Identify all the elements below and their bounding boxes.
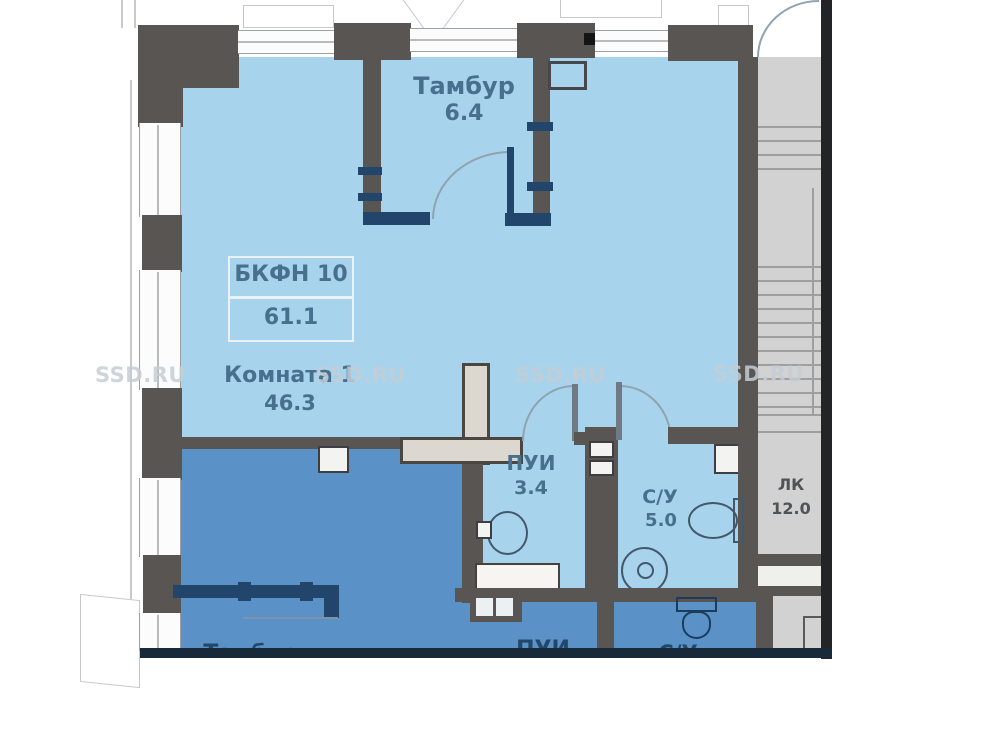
plan-bottom-edge bbox=[140, 648, 832, 658]
vent-shaft bbox=[714, 444, 741, 474]
room-pui-area: 3.4 bbox=[514, 478, 548, 499]
facade-line bbox=[134, 0, 136, 28]
room-pui-label: ПУИ bbox=[507, 452, 556, 474]
vent-shaft bbox=[589, 460, 614, 476]
window-mullion bbox=[157, 480, 159, 555]
tambur-bottom-partition bbox=[173, 585, 338, 598]
tambur-wall-return bbox=[363, 212, 430, 225]
partition-tick bbox=[358, 193, 382, 201]
watermark: SSD.RU bbox=[95, 363, 186, 387]
toilet-tank-icon bbox=[733, 498, 744, 543]
unit-area: 61.1 bbox=[264, 306, 318, 330]
column-mark bbox=[584, 33, 595, 45]
room-tambur-top-area: 6.4 bbox=[445, 102, 484, 126]
watermark: SSD.RU bbox=[713, 362, 804, 386]
window bbox=[139, 478, 181, 557]
vent-shaft bbox=[589, 441, 614, 458]
insulated-wall-horizontal bbox=[400, 437, 523, 464]
unit-info-divider bbox=[228, 296, 354, 299]
toilet-icon bbox=[688, 502, 738, 539]
wall-pier bbox=[142, 215, 182, 272]
stair-rail-line bbox=[812, 188, 814, 416]
window-mullion bbox=[157, 125, 159, 215]
shaft-closet bbox=[548, 61, 587, 90]
room-komnata-area: 46.3 bbox=[264, 392, 316, 415]
outer-wall-right bbox=[821, 0, 832, 659]
window bbox=[139, 123, 181, 217]
sink-icon bbox=[487, 511, 528, 555]
room-lk-label: ЛК bbox=[778, 476, 804, 494]
window-mullion bbox=[410, 39, 517, 41]
room-tambur-top-label: Тамбур bbox=[413, 73, 515, 99]
room-lk-area: 12.0 bbox=[771, 500, 810, 518]
corner-pier bbox=[138, 25, 183, 127]
partition-tick bbox=[527, 182, 553, 191]
tambur-door-leaf bbox=[507, 147, 514, 225]
wall-shaft bbox=[318, 446, 349, 473]
watermark: SSD.RU bbox=[315, 363, 406, 387]
entrance-door-arc bbox=[757, 0, 819, 57]
partition-tick bbox=[527, 122, 553, 131]
balcony-outline-top-left bbox=[243, 5, 334, 28]
balcony-outline-top-middle bbox=[560, 0, 662, 18]
shower-drain-inner-icon bbox=[637, 562, 654, 579]
stair-landing-line bbox=[758, 431, 822, 433]
window-mullion bbox=[595, 40, 668, 42]
floorplan-canvas: Тамбур 6.4 БКФН 10 61.1 Комната 1 46.3 П… bbox=[0, 0, 1000, 750]
wall-pier bbox=[142, 388, 182, 480]
wall-pier bbox=[334, 23, 411, 60]
wall-su-top bbox=[668, 427, 739, 444]
balcony-outline-top-right bbox=[718, 5, 749, 26]
wall-pier bbox=[668, 25, 753, 61]
window-mullion bbox=[238, 41, 334, 43]
unit-label: БКФН 10 bbox=[234, 263, 347, 287]
stair-landing-strip bbox=[752, 566, 832, 586]
su-door-leaf bbox=[616, 382, 622, 440]
room-su-label: С/У bbox=[642, 487, 678, 508]
bottom-labels-clip: Тамбур ПУИ С/У bbox=[140, 598, 840, 654]
wall-komnata-bottom bbox=[143, 437, 403, 449]
outline-bottom-left bbox=[80, 594, 140, 688]
watermark: SSD.RU bbox=[515, 363, 606, 387]
soap-box-icon bbox=[476, 521, 492, 539]
partition-tick bbox=[358, 167, 382, 175]
stair-treads-upper bbox=[758, 126, 822, 178]
facade-line bbox=[121, 0, 123, 28]
room-su-area: 5.0 bbox=[645, 511, 677, 531]
